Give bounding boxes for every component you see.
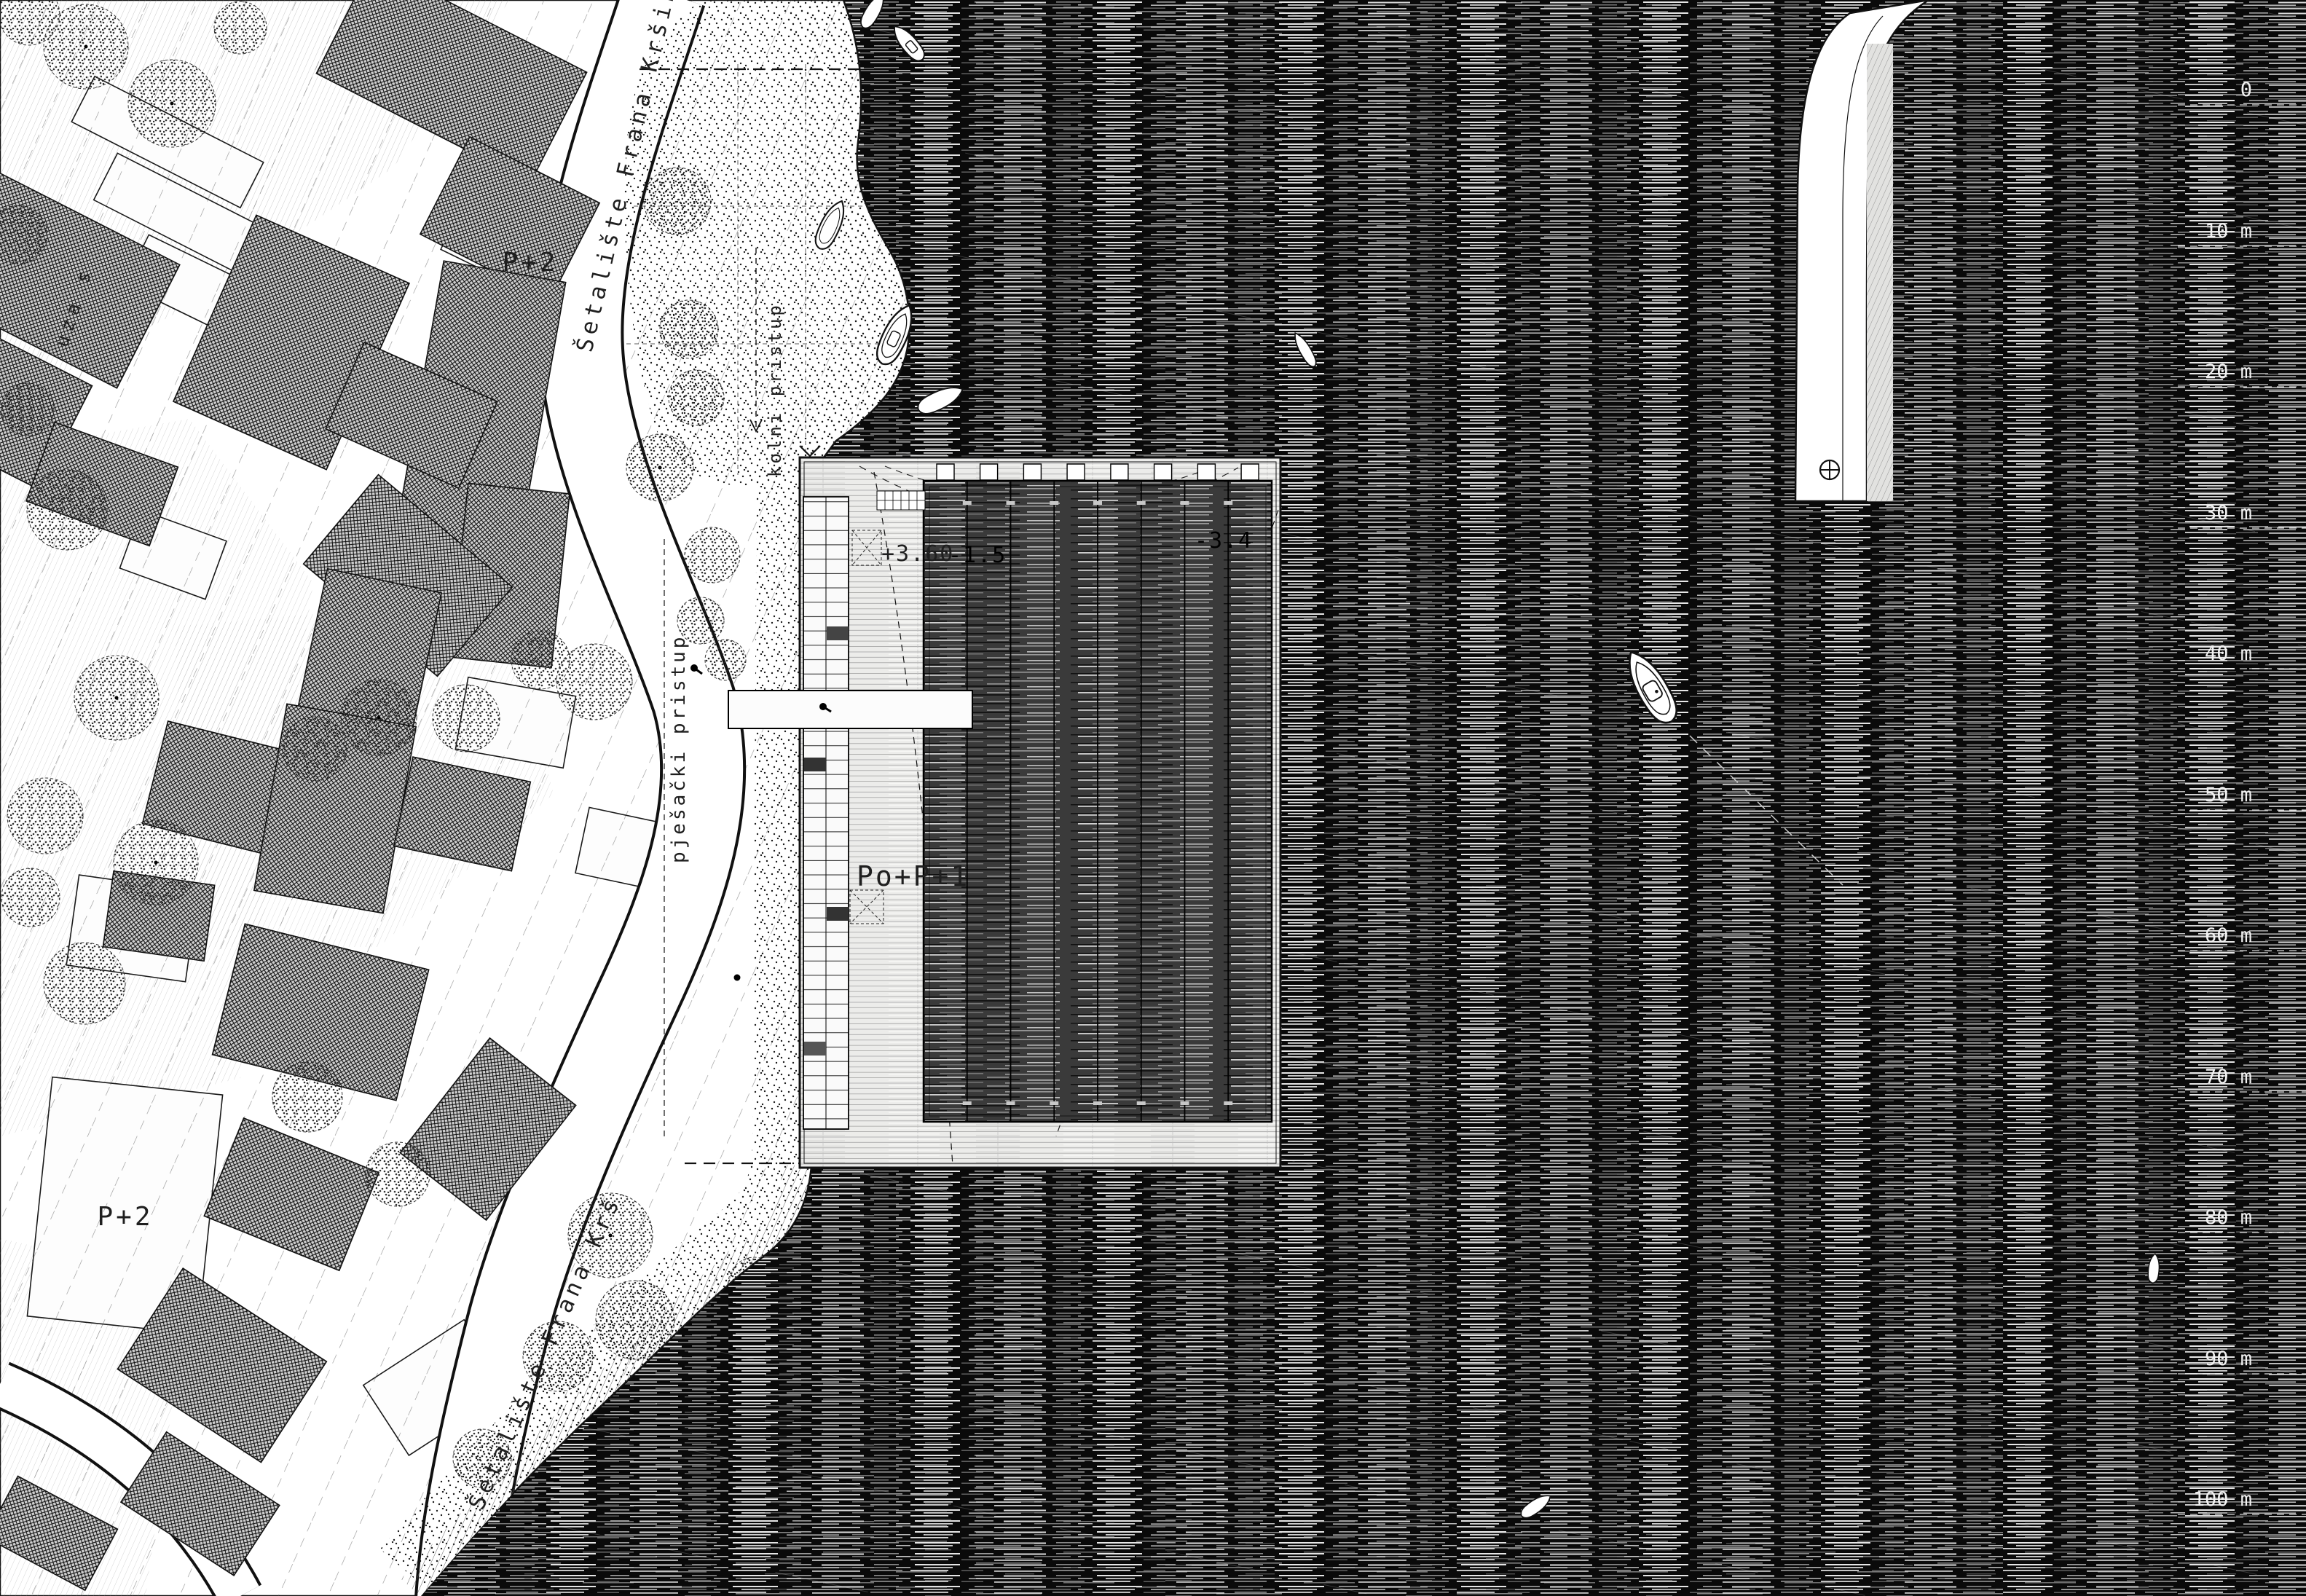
cabin-strip xyxy=(803,497,849,1129)
mooring-symbol xyxy=(1820,460,1839,479)
cabin-cell-dark xyxy=(827,626,849,640)
tree xyxy=(433,685,500,752)
jetty-shadow-hatch xyxy=(1867,44,1893,501)
tree xyxy=(1,383,54,436)
tree xyxy=(511,631,570,689)
scale-tick-label-30: 30 m xyxy=(2205,502,2252,524)
tree xyxy=(1,868,60,927)
scale-tick-label-40: 40 m xyxy=(2205,642,2252,665)
scale-tick-label-10: 10 m xyxy=(2205,220,2252,243)
building-floors-label-upper: P+2 xyxy=(502,248,558,278)
site-plan-svg: Šetalište Frana Kršinica Šetalište Frana… xyxy=(0,0,2306,1596)
scale-tick-label-90: 90 m xyxy=(2205,1348,2252,1370)
deck-elevation-label: +3.60 xyxy=(881,541,954,567)
building-floors-label-lower: P+2 xyxy=(97,1202,153,1232)
tree xyxy=(660,300,718,358)
pool-depth-shallow-label: -1.5 xyxy=(948,543,1007,568)
tree xyxy=(27,470,107,550)
scale-tick-label-0: 0 xyxy=(2240,79,2252,101)
deck-steps xyxy=(877,491,925,510)
scale-tick-label-100: 100 m xyxy=(2193,1488,2252,1511)
person-figure xyxy=(734,975,741,981)
scale-tick-label-60: 60 m xyxy=(2205,924,2252,947)
tree xyxy=(272,1062,342,1132)
tree xyxy=(669,370,724,425)
tree xyxy=(685,527,740,583)
pool-building-floors-label: Po+P+1 xyxy=(857,860,969,892)
scale-tick-label-70: 70 m xyxy=(2205,1066,2252,1088)
tree xyxy=(283,717,347,781)
access-bridge xyxy=(728,691,972,728)
tree xyxy=(366,1142,430,1206)
tree xyxy=(705,640,746,680)
vehicle-access-label: kolni pristup xyxy=(765,302,785,477)
tree xyxy=(644,168,711,235)
scale-tick-label-80: 80 m xyxy=(2205,1206,2252,1229)
pedestrian-access-label: pješački pristup xyxy=(668,634,690,863)
tree xyxy=(7,778,83,854)
pool-depth-deep-label: -3.4 xyxy=(1195,528,1253,554)
scale-tick-label-50: 50 m xyxy=(2205,784,2252,806)
cabin-cell-dark xyxy=(804,1042,826,1056)
cabin-cell-dark xyxy=(804,758,826,771)
cabin-cell-dark xyxy=(827,907,849,921)
scale-tick-label-20: 20 m xyxy=(2205,361,2252,383)
tree xyxy=(44,943,125,1024)
site-plan-page: Šetalište Frana Kršinica Šetalište Frana… xyxy=(0,0,2306,1596)
tree xyxy=(214,1,267,54)
